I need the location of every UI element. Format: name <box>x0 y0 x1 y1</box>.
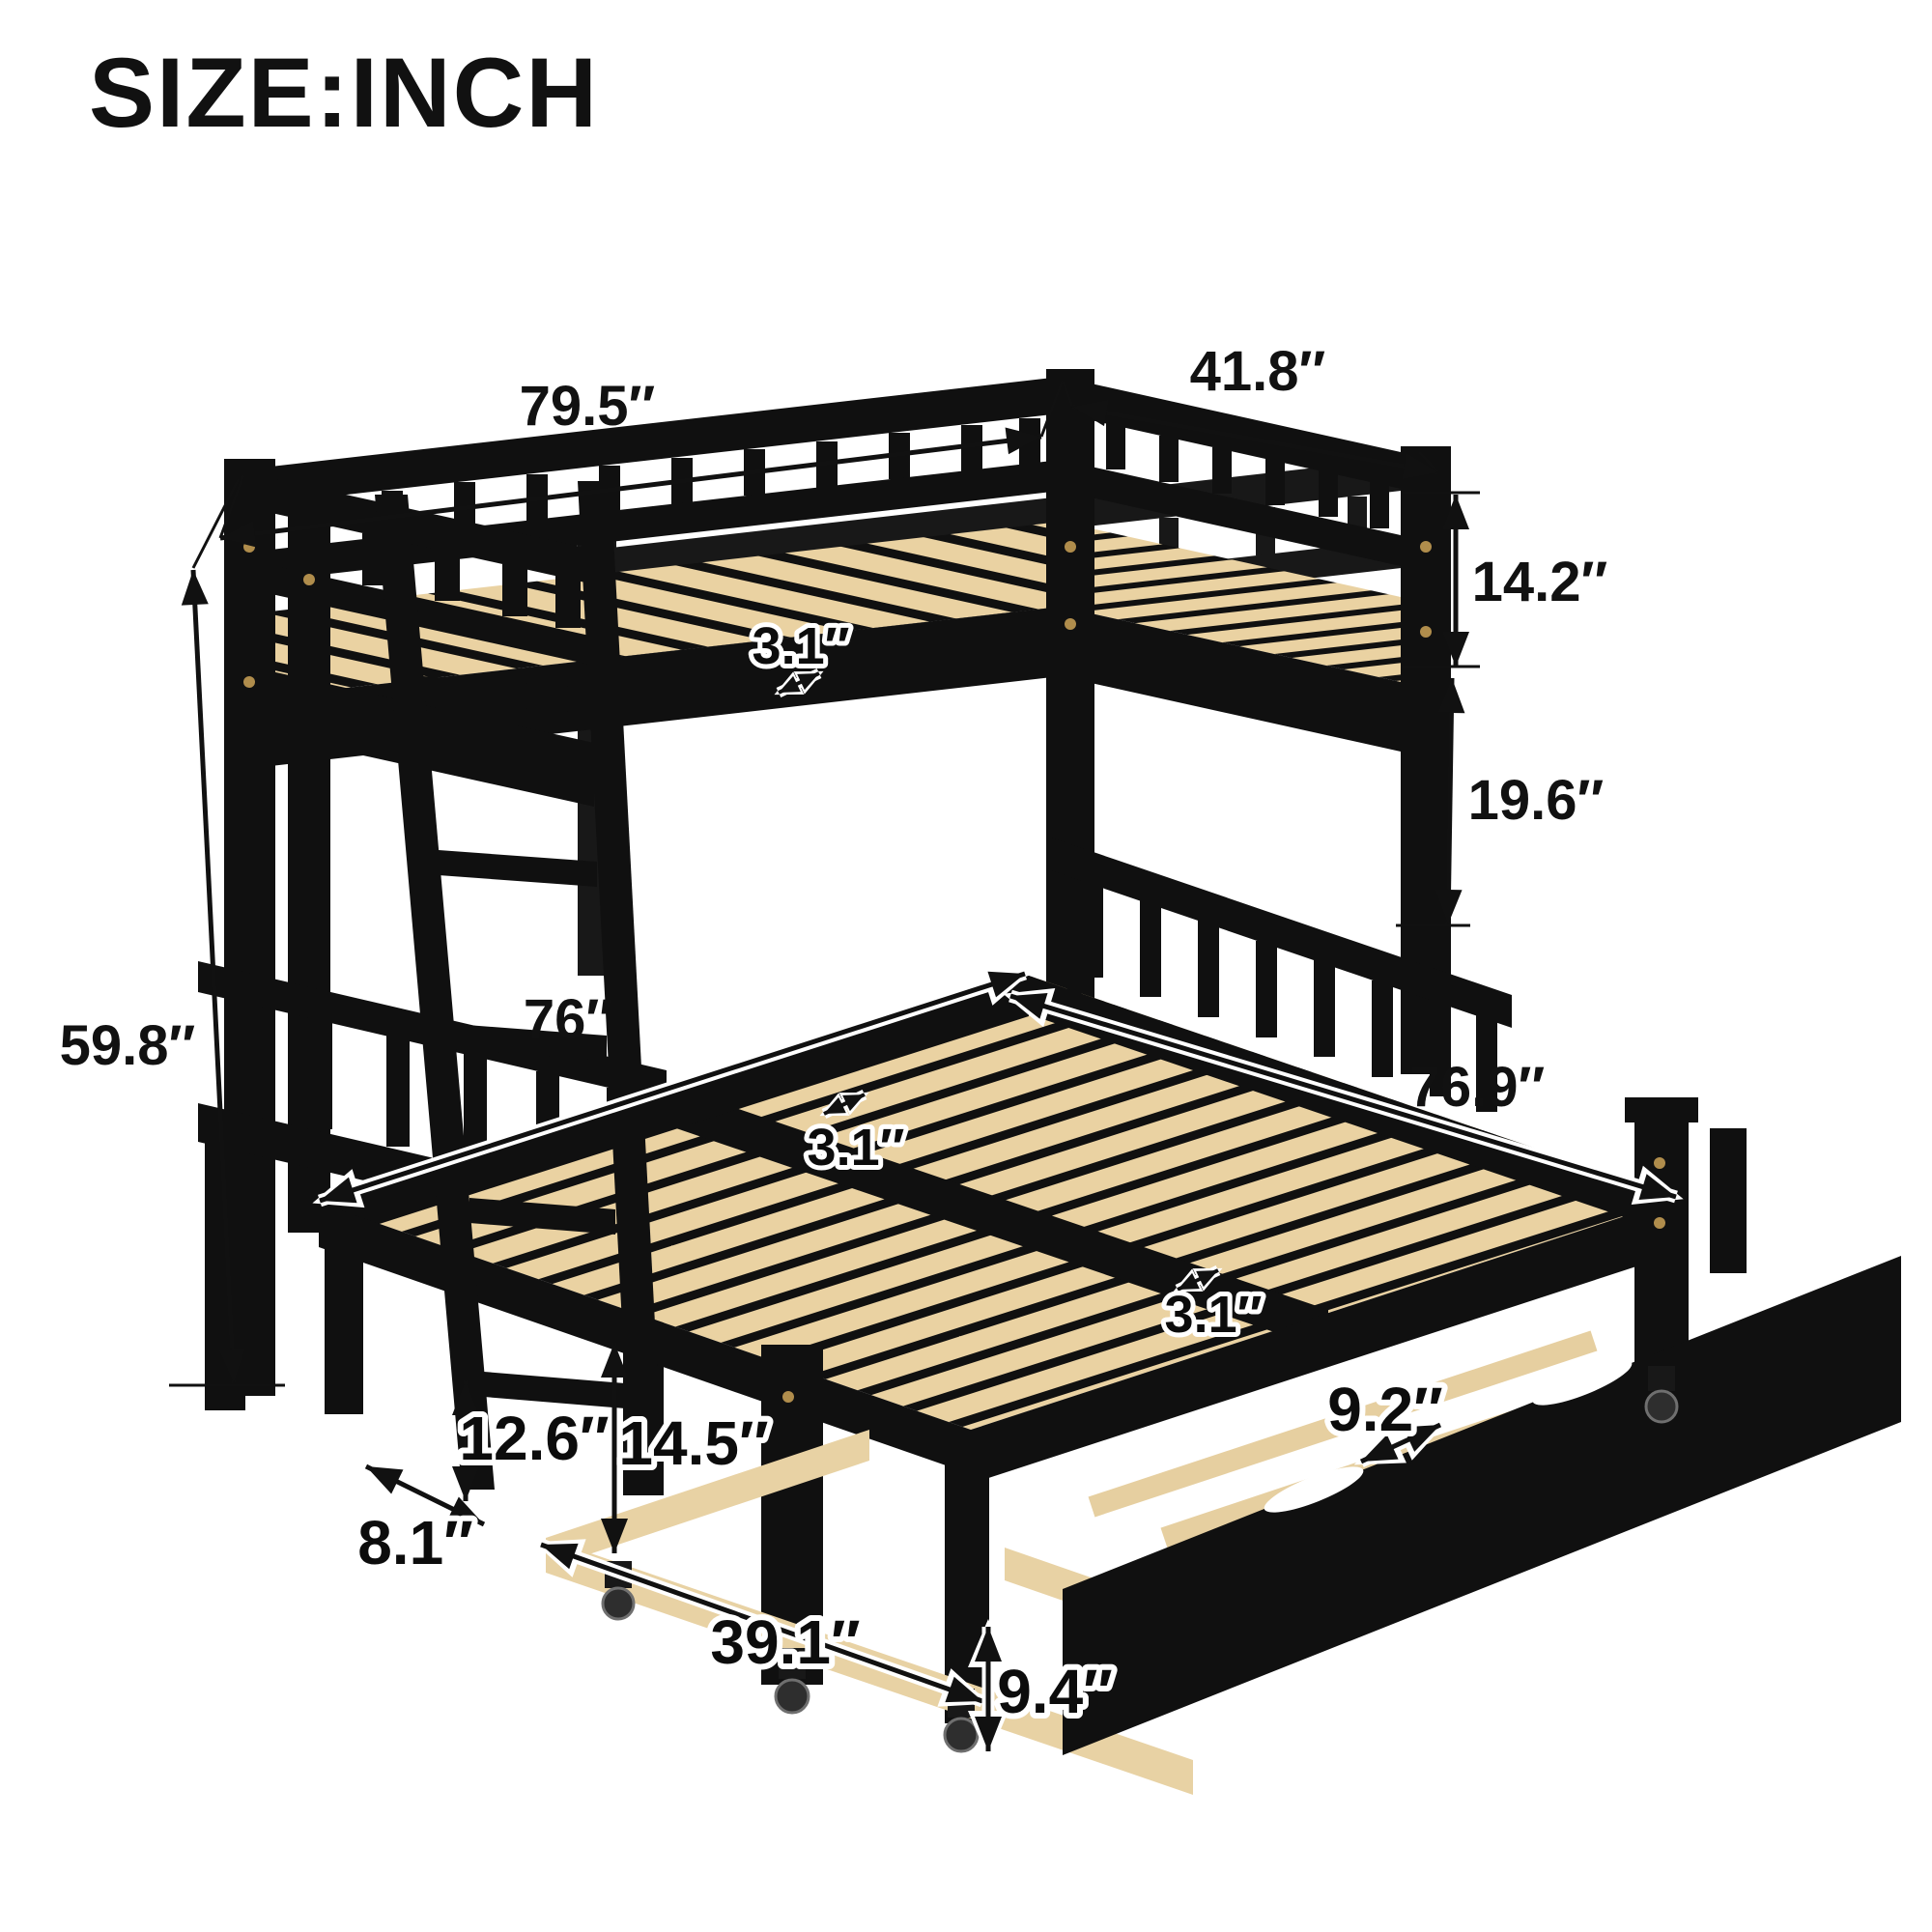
dim-label-under-bed-clearance: 14.5″ <box>618 1408 768 1478</box>
dim-label-ladder-foot-depth: 8.1″ <box>357 1508 473 1577</box>
dim-label-trundle-width: 39.1″ <box>710 1607 860 1677</box>
dim-label-bunk-length: 79.5″ <box>520 375 656 438</box>
dim-label-bunk-gap-height: 19.6″ <box>1468 769 1605 832</box>
dim-label-pullout-slat-spacing: 3.1″ <box>808 1119 905 1177</box>
dim-label-pullout-bed-width: 76.9″ <box>1409 1056 1546 1119</box>
dim-label-trundle-height: 9.4″ <box>997 1657 1113 1726</box>
dim-label-overall-height: 59.8″ <box>60 1014 196 1077</box>
dim-label-guardrail-height: 14.2″ <box>1472 551 1608 613</box>
diagram-canvas: SIZE:INCH <box>0 0 1932 1932</box>
dim-label-upper-slat-spacing: 3.1″ <box>753 617 850 675</box>
dim-label-pullout-bed-length: 76″ <box>524 988 612 1051</box>
dim-label-pullout-slat-spacing-2: 3.1″ <box>1165 1286 1263 1344</box>
bed-dimension-illustration: 79.5″ 41.8″ 14.2″ 19.6″ 59.8″ <box>0 0 1932 1932</box>
dim-label-front-leg-height: 12.6″ <box>459 1404 609 1473</box>
dim-label-bunk-width: 41.8″ <box>1190 340 1326 403</box>
dim-label-trundle-slat-spacing: 9.2″ <box>1327 1375 1443 1444</box>
